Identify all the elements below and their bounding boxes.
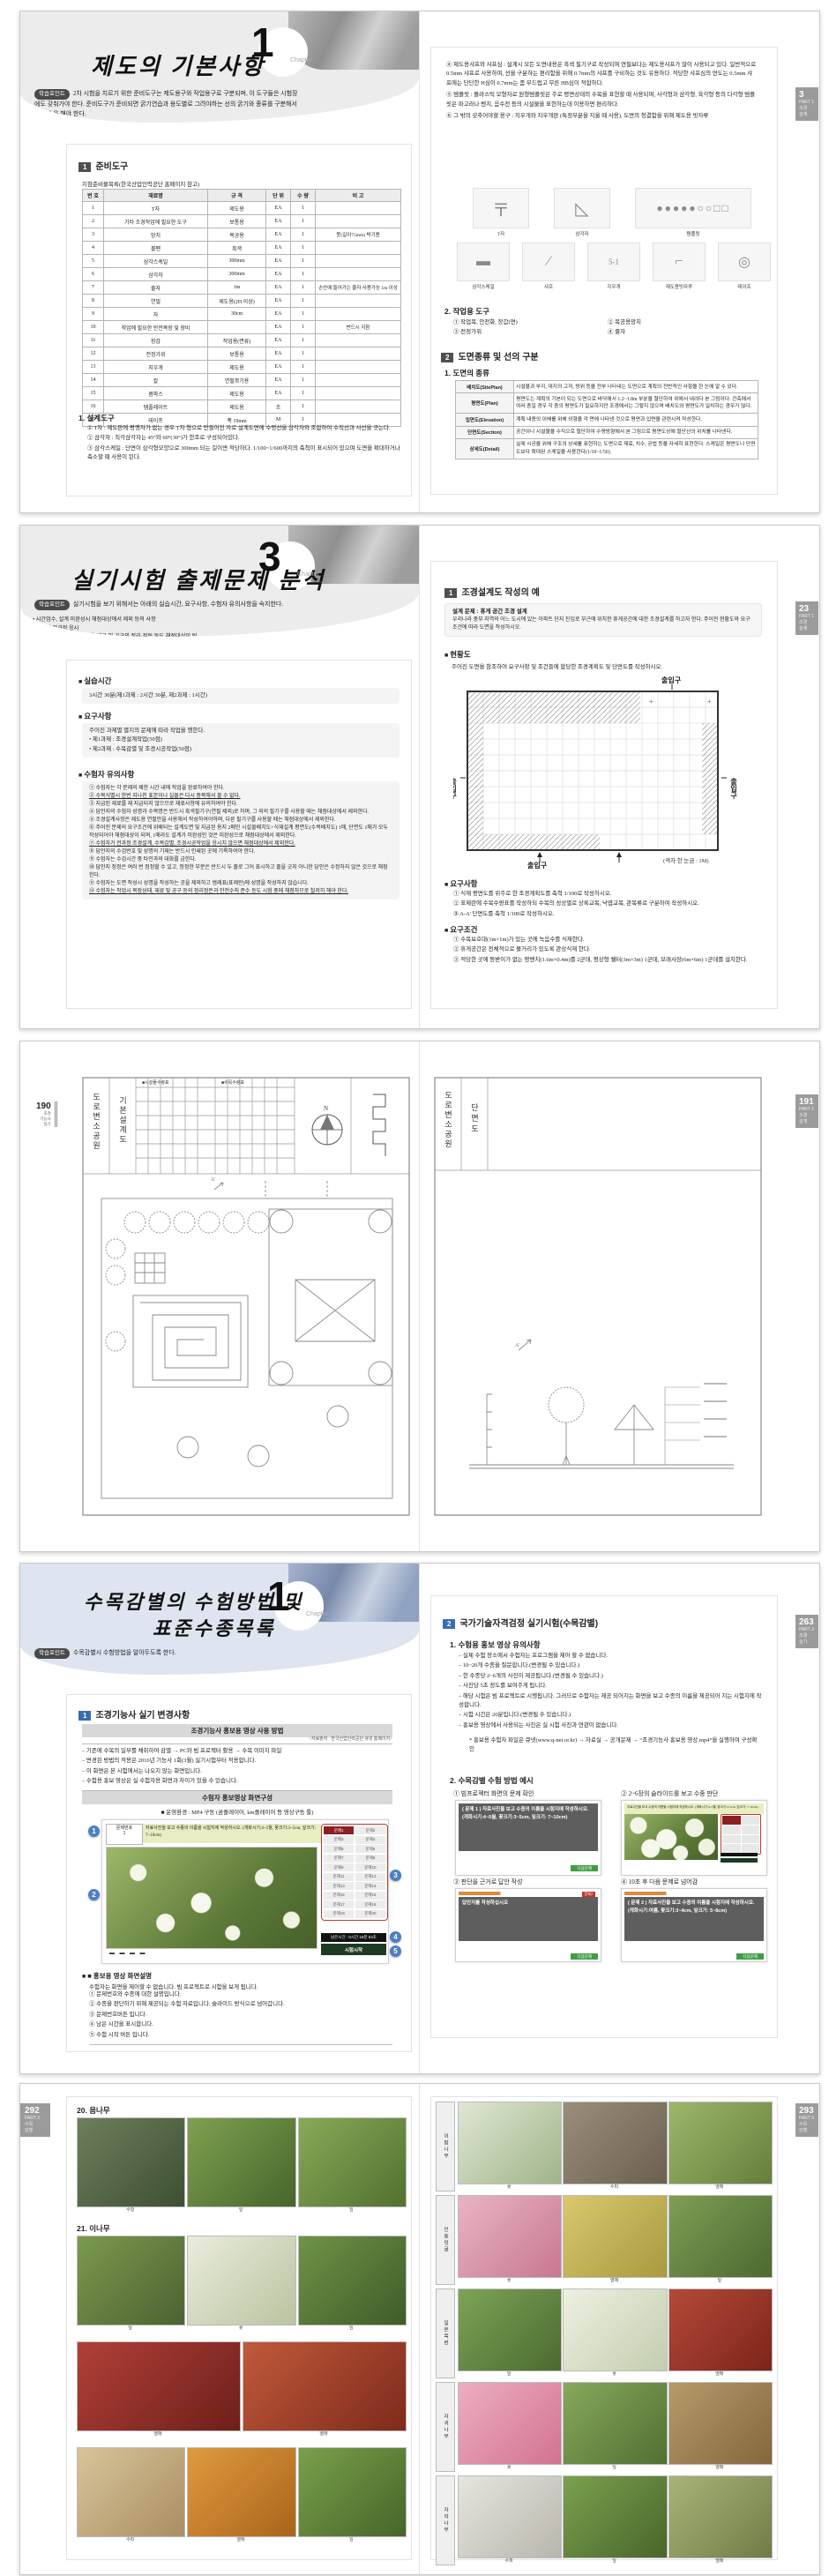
table-row: 9자30cmEA1	[83, 308, 401, 321]
page-tab: 3 PART 1조경설계	[795, 87, 818, 121]
chapter-header: 제도의 기본사항 1 Chapter 학습포인트2차 시험을 치르기 위한 준비…	[20, 11, 419, 123]
table-row: 5삼각스케일300mmEA1	[83, 255, 401, 268]
table-row: 13지우개제도용EA1	[83, 361, 401, 374]
method-note-item: – 이 화면은 본 시험에서는 나오지 않는 화면입니다.	[82, 1767, 392, 1776]
chapter-title: 제도의 기본사항	[91, 49, 265, 81]
screen-description-heading: ■ 홍보용 영상 화면설명	[82, 1971, 152, 1981]
definition-row: 배치도(SitePlan)시설물과 부지, 대지의 고저, 방위 등을 전부 나…	[456, 381, 758, 393]
question-button: 문제14	[355, 1882, 385, 1890]
question-button: 문제4	[355, 1836, 385, 1844]
spread5-right-page: 293 PART 3수목감별 이팝나무 꽃수피열매 인동덩굴 꽃열매잎 일본목련…	[420, 2084, 818, 2574]
notices-box: ① 수험자는 각 문제의 제한 시간 내에 작업을 완료하여야 한다.② 수목식…	[82, 781, 400, 900]
table-row: 10작업에 필요한 안전복장 및 장비EA1반드시 지참	[83, 321, 401, 334]
page-tab: 23 PART 1조경설계	[795, 601, 818, 635]
screen-description-intro: 수험자는 화면을 제어할 수 없습니다. 빔 프로젝트로 시험을 보게 됩니다.	[89, 1982, 258, 1990]
study-point-text: 수목감별시 수험방법을 알아두도록 한다.	[73, 1649, 176, 1656]
template-image: ●●●●●○○□□템플릿	[635, 188, 751, 237]
study-point-badge: 학습포인트	[34, 600, 70, 610]
species-photo: 열매	[563, 2195, 665, 2285]
species-name: 이팝나무	[436, 2102, 455, 2191]
practice-time-box: 3시간 30분(제1과제 : 2시간 30분, 제2과제 : 1시간)	[82, 688, 400, 704]
page-spread-3[interactable]: 190 조경기능사실기 도로변소공원 기본설계도 ■시설물수량표 ■수목수량표 …	[19, 1041, 820, 1552]
species-photo: 잎	[298, 2447, 405, 2544]
supply-table-body: 1T자제도용EA12기타 조경작업에 필요한 도구보통용EA13망치목공용EA1…	[83, 202, 401, 427]
north-label: N	[324, 1105, 328, 1112]
pencil-image: ∕샤프	[522, 243, 575, 290]
example3-answer-text: 답안지를 작성하십시오	[459, 1897, 598, 1941]
spread3-left-page: 190 조경기능사실기 도로변소공원 기본설계도 ■시설물수량표 ■수목수량표 …	[20, 1042, 419, 1551]
description-item: ⑤ 수험 시작 버튼 입니다.	[89, 2031, 392, 2040]
section-title: 도면종류 및 선의 구분	[458, 353, 538, 362]
notice-item: – 시험 시간은 20분입니다.(변경될 수 있습니다.)	[459, 1711, 764, 1720]
table-row: 2기타 조경작업에 필요한 도구보통용EA1	[83, 215, 401, 228]
drawing-types-subtitle: 1. 도면의 종류	[444, 368, 489, 378]
site-plan-heading: 현황도	[444, 649, 471, 660]
method-note-item: – 기존에 수목의 일부를 채취하여 감별 → PC와 빔 프로젝터 활용 → …	[82, 1747, 392, 1756]
example4-caption: ④ 10초 후 다음 문제로 넘어감	[621, 1878, 698, 1886]
species-photo: 수피	[563, 2102, 665, 2191]
note-item: ④ 제도용샤프와 샤프심 : 설계시 모든 도면내용은 흑색 필기구로 작성되며…	[446, 61, 757, 88]
problem-box: 설계 문제 : 휴게 공간 조경 설계 우리나라 중부 지역의 어느 도시에 있…	[444, 603, 762, 637]
chapter-title-line2: 표준수종목록	[153, 1613, 275, 1641]
callout-5: 5	[390, 1945, 401, 1957]
eraser-image: 5-1지우개	[587, 243, 640, 290]
example3-caption: ③ 판단을 근거로 답안 작성	[453, 1878, 522, 1886]
chapter-header: 실기시험 출제문제 분석 3 Chapter 학습포인트실기시험을 보기 위해서…	[20, 526, 419, 637]
column-header: 수 량	[291, 190, 316, 202]
photo-image	[77, 2117, 185, 2207]
section-heading: 2국가기술자격검정 실기시험(수목감별)	[443, 1615, 598, 1631]
method-note-item: – 변경된 방법의 적용은 2016년 기능사 1회(3월) 실기시험부터 적용…	[82, 1757, 392, 1766]
question-button: 문제19	[324, 1910, 354, 1918]
legend-facility: ■시설물수량표	[142, 1079, 169, 1086]
species-photo: 꽃	[458, 2382, 560, 2472]
scale-ruler-image: ▬삼각스케일	[457, 243, 510, 290]
species-photo: 열매	[668, 2382, 771, 2472]
study-point-text: 2차 시험을 치르기 위한 준비도구는 제도용구와 작업용구로 구분되며, 이 …	[34, 90, 298, 117]
example1-screenshot: ( 문제 1 ) 자료사진을 보고 수종의 이름을 시험지에 작성하시오. (개…	[455, 1800, 601, 1876]
photo-image	[187, 2117, 295, 2207]
section-drawing-sheet: 도로변소공원 단면도 A'	[434, 1077, 762, 1516]
chapter-header: 수목감별의 수험방법 및 표준수종목록 1 Chapter 학습포인트수목감별시…	[20, 1564, 419, 1675]
section-number-box: 1	[78, 1711, 91, 1721]
photo-caption: 잎	[187, 2207, 294, 2214]
question-button: 문제15	[324, 1892, 354, 1900]
remaining-time-bar: 남은시간 : 0시간 19분 53초	[321, 1933, 386, 1942]
species-name: 인동덩굴	[436, 2195, 455, 2285]
titleblock-project: 도로변소공원	[92, 1093, 101, 1151]
table-row: 8연필제도용(2H 이상)EA1	[83, 295, 401, 308]
notice-item: ⑦ 수험자가 전과정 조경설계, 수목감별, 조경시공작업을 응시치 않으면 채…	[89, 840, 392, 848]
tape-image: ◎테이프	[718, 243, 771, 290]
condition-item: ③ 적당한 곳에 등받이가 없는 평벤치(1.6m×0.4m)를 2군데, 평상…	[453, 956, 762, 965]
request-item: ② 표제란에 수목수량표를 작성하되 수목의 성상별로 상록교목, 낙엽교목, …	[453, 900, 762, 908]
question-button: 문제8	[355, 1855, 385, 1863]
chapter-title: 실기시험 출제문제 분석	[71, 563, 325, 595]
design-tool-notes: ① T자 : 제도판에 평행자가 없는 경우 T자 형으로 만들어진 자로 설계…	[87, 424, 401, 464]
species-row: 인동덩굴 꽃열매잎	[436, 2195, 771, 2285]
carousel-dots: ▬ ▬ ▬ ▬	[109, 1951, 162, 1956]
tool-notes-456: ④ 제도용샤프와 샤프심 : 설계시 모든 도면내용은 흑색 필기구로 작성되며…	[446, 61, 757, 123]
study-point: 학습포인트2차 시험을 치르기 위한 준비도구는 제도용구와 작업용구로 구분되…	[34, 89, 299, 119]
svg-text:+: +	[707, 698, 712, 706]
study-point-badge: 학습포인트	[34, 89, 70, 100]
question-button: 문제5	[324, 1845, 354, 1853]
section-number-box: 2	[441, 353, 453, 362]
section-title: 국가기술자격검정 실기시험(수목감별)	[459, 1619, 598, 1629]
callout-3: 3	[390, 1870, 401, 1881]
condition-item: ② 휴게공간은 전체적으로 볼거리가 있도록 관상식재 한다.	[453, 945, 762, 954]
question-button: 문제16	[355, 1892, 385, 1900]
legend-tree: ■수목수량표	[221, 1079, 244, 1086]
question-badge: 문제2	[582, 1892, 595, 1897]
question-button: 문제12	[355, 1873, 385, 1881]
titleblock-project: 도로변소공원	[444, 1091, 452, 1149]
specimen-photo	[106, 1847, 317, 1949]
next-button: 다음문제	[571, 1865, 598, 1871]
table-caption: 지참준비물목록(한국산업인력공단 홈페이지 참고)	[82, 179, 199, 188]
section2-heading: 2도면종류 및 선의 구분	[441, 348, 539, 364]
species-photo: 꽃	[458, 2102, 560, 2191]
species-photo: 열매	[668, 2102, 771, 2191]
screen-layout-bar: 수험자 홍보영상 화면구성	[82, 1791, 392, 1804]
page-spread-2[interactable]: 실기시험 출제문제 분석 3 Chapter 학습포인트실기시험을 보기 위해서…	[19, 525, 820, 1029]
photo-caption: 잎	[298, 2207, 405, 2214]
section-heading: 1준비도구	[78, 158, 128, 174]
drawing-types-table: 배치도(SitePlan)시설물과 부지, 대지의 고저, 방위 등을 전부 나…	[455, 380, 758, 459]
condition-list: ① 수목보호대(1m×1m)가 있는 곳에 녹음수를 식재한다.② 휴게공간은 …	[453, 936, 762, 966]
callout-2: 2	[88, 1889, 100, 1900]
species-photo: 꽃	[563, 2289, 665, 2378]
definition-row: 상세도(Detail)실제 시공을 위해 구조의 상세를 표현하는 도면으로 재…	[456, 438, 758, 459]
example4-question-text: ( 문제 2 ) 자료사진을 보고 수종의 이름을 시험지에 작성하시오. (개…	[624, 1897, 764, 1941]
table-row: 1T자제도용EA1	[83, 202, 401, 215]
condition-heading: 요구조건	[444, 924, 477, 935]
entrance-label-left: 출입구	[453, 777, 458, 800]
species-photo: 열매	[668, 2289, 771, 2378]
species-row: 일본목련 잎꽃열매	[436, 2289, 771, 2378]
species-20-photos: 수형잎잎	[77, 2117, 405, 2214]
subsection-title: 1. 설계도구	[78, 413, 115, 423]
method-notes: – 기존에 수목의 일부를 채취하여 감별 → PC와 빔 프로젝터 활용 → …	[82, 1743, 392, 1791]
species-photo: 잎	[563, 2475, 665, 2565]
species-name: 자작나무	[436, 2475, 455, 2565]
notice-item: ⑤ 조경설계사항은 제도용 연필만을 사용해서 작성하여야하며, 다른 필기구를…	[89, 817, 392, 825]
chapter-number: 1	[251, 22, 274, 63]
notice-subtitle: 1. 수험용 홍보 영상 유의사항	[450, 1639, 541, 1650]
note-item: ⑥ 그 밖의 갖추어야할 용구 : 지우개와 지우개판 (특정부분을 지울 때 …	[446, 112, 757, 121]
species-photo: 열매	[77, 2341, 239, 2438]
page-spread-5[interactable]: 292 PART 3수목감별 20. 음나무 수형잎잎 21. 이나무 잎꽃잎 …	[19, 2083, 820, 2575]
titleblock-sheet: 기본설계도	[118, 1096, 127, 1145]
chapter-word: Chapter	[306, 1611, 328, 1617]
notice-item: – 홍보용 영상에서 사용되는 사진은 실 시험 사진과 연관이 없습니다.	[459, 1721, 764, 1730]
section-heading: 1조경기능사 실기 변경사항	[78, 1706, 190, 1722]
question-button: 문제11	[324, 1873, 354, 1881]
page-tab: 293 PART 3수목감별	[795, 2103, 818, 2137]
study-point: 학습포인트수목감별시 수험방법을 알아두도록 한다.	[34, 1648, 317, 1659]
spread5-left-page: 292 PART 3수목감별 20. 음나무 수형잎잎 21. 이나무 잎꽃잎 …	[20, 2084, 419, 2574]
description-item: ④ 남은 시간을 표시합니다.	[89, 2020, 392, 2029]
next-button: 다음문제	[571, 1953, 598, 1960]
question-button: 문제7	[324, 1855, 354, 1863]
notice-item: – 한 수종당 2~6개의 사진이 제공됩니다.(변경될 수 있습니다.)	[459, 1672, 764, 1681]
exam-start-bar: 시험시작	[321, 1944, 386, 1955]
margin-page-number: 190 조경기능사실기	[36, 1101, 57, 1127]
photo-caption: 수형	[77, 2207, 183, 2214]
notice-item: ② 수목식별시 한번 지나친 표본이나 실물은 다시 중복해서 볼 수 없다.	[89, 793, 392, 801]
notice-item: ③ 지급된 재료를 재 지급되지 않으므로 재료사항에 유의하여야 한다.	[89, 801, 392, 809]
species-photo: 잎	[298, 2236, 405, 2333]
section-number-box: 1	[444, 588, 457, 598]
example3-screenshot: 문제2 답안지를 작성하십시오 다음문제	[455, 1888, 601, 1962]
question-button: 문제20	[355, 1910, 385, 1918]
species-photo: 열매	[243, 2341, 405, 2438]
notice-item: – 실제 수험 장소에서 수험자는 프로그램을 제어 할 수 없습니다.	[459, 1652, 764, 1661]
work-tool-item: ① 작업복, 안전화, 장갑(면)	[453, 318, 599, 327]
species-name: 자귀나무	[436, 2382, 455, 2472]
condition-item: ① 수목보호대(1m×1m)가 있는 곳에 녹음수를 식재한다.	[453, 936, 762, 945]
column-header: 단 위	[266, 190, 291, 202]
notice-item: ⑪ 수험자는 도면 작성시 성명을 작성하는 곳을 제외하고 범례표(표제란)에…	[89, 880, 392, 888]
section-number-box: 1	[78, 162, 91, 172]
problem-title: 설계 문제 : 휴게 공간 조경 설계	[452, 608, 754, 616]
entrance-label-right: 출입구	[729, 777, 737, 800]
mini-button-grid	[721, 1814, 761, 1855]
environment-line: ■ 운영환경 : MP4 구동 (곰플레이어, km플레이어 등 영상구동 툴)	[82, 1807, 392, 1816]
bullet-item: • 시간엄수, 설계 미완성시 채점대상에서 제외 등의 사항	[33, 616, 324, 624]
supply-table: 번 호재료명규 격단 위수 량비 고 1T자제도용EA12기타 조경작업에 필요…	[82, 189, 401, 427]
notice-item: ⑫ 수험자는 작업시 복장상태, 재료 및 공구 등의 정리정돈과 안전수칙 준…	[89, 888, 392, 896]
request-item: ① 식재 평면도를 위주로 한 조경계획도를 축척 1/100로 작성하시오.	[453, 890, 762, 899]
example2-screenshot: 자료사진을 보고 수종의 이름을 시험지에 작성하시오. (개화시기:4~5월,…	[621, 1800, 767, 1876]
table-row: 11장갑작업용(면류)EA1	[83, 334, 401, 347]
chapter-word: Chapter	[290, 57, 312, 63]
example-subtitle: 2. 수목감별 수험 방법 예시	[450, 1775, 534, 1786]
page-number: 293	[799, 2106, 818, 2116]
notice-item: ⑧ 답안지의 수검번호 및 성명의 기재는 반드시 인쇄된 곳에 기록하여야 한…	[89, 848, 392, 856]
column-header: 재료명	[104, 190, 208, 202]
note-item: ① T자 : 제도판에 평행자가 없는 경우 T자 형으로 만들어진 자로 설계…	[87, 424, 401, 433]
table-row: 7줄자1mEA1손안에 들어가는 줄자 사용가능 1m 이상	[83, 281, 401, 295]
section-number-box: 2	[443, 1619, 455, 1629]
requirements-list: • 제1과제 : 조경설계작업(50점)• 제2과제 : 수목감별 및 조경시공…	[89, 735, 392, 754]
question-number-cell: 문제번호1	[106, 1824, 143, 1845]
question-button: 문제3	[324, 1836, 354, 1844]
triangle-ruler-image: ◺삼각자	[554, 188, 610, 237]
question-instruction: 자료사진을 보고 수종의 이름을 시험지에 작성하시오. (개화시기:4~5월,…	[143, 1824, 321, 1843]
tab-part: PART 1	[799, 100, 814, 105]
section-title: 준비도구	[95, 162, 128, 172]
question-button: 문제13	[324, 1882, 354, 1890]
species-photo: 잎	[77, 2236, 183, 2333]
site-plan-intro: 주어진 도면을 참조하여 요구사항 및 조건들에 합당한 조경계획도 및 단면도…	[452, 661, 662, 670]
work-tools-list: ① 작업복, 안전화, 장갑(면)② 목공용망치③ 전정가위④ 줄자	[453, 318, 753, 339]
question-button: 문제17	[324, 1900, 354, 1908]
problem-text: 우리나라 중부 지역의 어느 도시에 있는 아파트 단지 진입로 부근에 위치한…	[452, 616, 754, 632]
description-item: ① 문제번호와 수종에 대한 설명입니다.	[89, 1990, 392, 1999]
question-button: 문제2	[355, 1826, 385, 1834]
work-tool-item: ④ 줄자	[608, 328, 753, 337]
mini-logo-bar	[624, 1892, 764, 1895]
tsquare-image: 〒T자	[473, 188, 529, 237]
question-button: 문제9	[324, 1863, 354, 1871]
question-button: 문제10	[355, 1863, 385, 1871]
species-row: 이팝나무 꽃수피열매	[436, 2102, 771, 2191]
section-title: 조경기능사 실기 변경사항	[95, 1711, 190, 1721]
spread1-right-page: 3 PART 1조경설계 ④ 제도용샤프와 샤프심 : 설계시 모든 도면내용은…	[420, 11, 818, 512]
request-item: ③ A-A' 단면도를 축척 1/100로 작성하시오.	[453, 910, 762, 919]
notice-item: ① 수험자는 각 문제의 제한 시간 내에 작업을 완료하여야 한다.	[89, 785, 392, 793]
grid-scale-note: (격자 한 눈금 : 1M)	[663, 856, 709, 864]
study-point: 학습포인트실기시험을 보기 위해서는 아래의 실습시간, 요구사항, 수험자 유…	[34, 600, 308, 610]
supply-table-header-row: 번 호재료명규 격단 위수 량비 고	[83, 190, 401, 202]
species-photo: 잎	[563, 2382, 665, 2472]
definition-row: 입면도(Elevation)계획 내용의 이해를 위해 외형을 각 면에 나타낸…	[456, 414, 758, 426]
chapter-number: 3	[258, 536, 281, 577]
callout-4: 4	[390, 1931, 401, 1943]
species-photo: 잎	[298, 2117, 405, 2214]
work-tool-item: ② 목공용망치	[608, 318, 753, 327]
example1-caption: ① 빔프로젝터 화면의 문제 확인	[453, 1789, 534, 1798]
requirement-item: • 제2과제 : 수목감별 및 조경시공작업(50점)	[89, 745, 392, 754]
table-row: 4볼펜흑색EA1	[83, 242, 401, 255]
page-spread-1[interactable]: 제도의 기본사항 1 Chapter 학습포인트2차 시험을 치르기 위한 준비…	[19, 11, 820, 513]
note-item: ③ 삼각스케일 : 단면이 삼각형모양으로 300mm 되는 길이면 적당하다.…	[87, 444, 401, 463]
qnet-note: * 홍보용 수험자 파일은 큐넷(www.q-net.or.kr) → 자료실 …	[469, 1736, 760, 1755]
example2-caption: ② 2~6장의 슬라이드를 보고 수종 판단	[621, 1789, 718, 1798]
screen-description-list: ① 문제번호와 수종에 대한 설명입니다.② 수종을 판단하기 위해 제공되는 …	[89, 1990, 392, 2045]
species-photo: 수피	[77, 2447, 183, 2544]
note-item: ⑤ 템플릿 : 플라스틱 모형자로 원형템플릿은 주로 평면상태의 수목을 표현…	[446, 91, 757, 109]
definition-row: 평면도(Plan)평면도는 계획의 기본이 되는 도면으로 바닥에서 1.2~1…	[456, 393, 758, 414]
spread2-right-page: 23 PART 1조경설계 1조경설계도 작성의 예 설계 문제 : 휴게 공간…	[420, 526, 818, 1028]
species-21-row2: 열매열매	[77, 2341, 405, 2438]
notice-list: – 실제 수험 장소에서 수험자는 프로그램을 제어 할 수 없습니다.– 10…	[459, 1652, 764, 1731]
species-photo: 열매	[187, 2447, 294, 2544]
book-preview-canvas: { "spread1": { "left": { "title": "제도의 기…	[0, 0, 829, 2576]
species-photo: 수피	[458, 2475, 560, 2565]
mini-specimen-photo	[624, 1814, 718, 1860]
example1-question-text: ( 문제 1 ) 자료사진을 보고 수종의 이름을 시험지에 작성하시오. (개…	[459, 1803, 598, 1851]
practice-time-heading: 실습시간	[78, 676, 111, 686]
column-header: 번 호	[83, 190, 104, 202]
table-row: 16템플레이트제도용조1	[83, 400, 401, 414]
request-heading: 요구사항	[444, 878, 477, 889]
page-number: 23	[799, 604, 818, 614]
question-button: 문제18	[355, 1900, 385, 1908]
photo-image	[298, 2117, 407, 2207]
bullet-item: • 수험자의 작업시 복장상태, 재료 및 공구의 정리·정돈 등도 채점대상이…	[33, 632, 324, 637]
page-tab: 263 PART 3조경실기	[795, 1615, 818, 1648]
description-item: ② 수종을 판단하기 위해 제공되는 수험 자료입니다. 슬라이드 방식으로 넘…	[89, 2000, 392, 2009]
site-plan-diagram: + + 출입구 출입구 출입구 출입구 (격자 한 눈금 : 1M)	[453, 672, 746, 873]
chapter-number: 1	[267, 1576, 290, 1617]
page-number: 263	[799, 1617, 818, 1627]
species-21-heading: 21. 이나무	[77, 2223, 110, 2234]
page-spread-4[interactable]: 수목감별의 수험방법 및 표준수종목록 1 Chapter 학습포인트수목감별시…	[19, 1563, 820, 2074]
question-button-grid: 문제1문제2문제3문제4문제5문제6문제7문제8문제9문제10문제11문제12문…	[321, 1824, 388, 1921]
species-photo: 잎	[187, 2117, 294, 2214]
description-item: ③ 문제번호버튼 입니다.	[89, 2011, 392, 2020]
spread4-left-page: 수목감별의 수험방법 및 표준수종목록 1 Chapter 학습포인트수목감별시…	[20, 1564, 419, 2073]
definition-row: 단면도(Section)공간이나 시설물을 수직으로 절단하여 수평방향에서 본…	[456, 426, 758, 438]
page-tab: 191 PART 1조경설계	[795, 1094, 818, 1128]
section-title: 조경설계도 작성의 예	[461, 588, 539, 598]
plan-drawing-sheet: 도로변소공원 기본설계도 ■시설물수량표 ■수목수량표 N	[82, 1077, 410, 1516]
notice-item: – 사진당 5초 정도를 보여주게 됩니다.	[459, 1682, 764, 1691]
page-number: 3	[799, 90, 818, 100]
page-number: 292	[25, 2106, 48, 2116]
table-row: 12전정가위보통용EA1	[83, 347, 401, 361]
species-21-row1: 잎꽃잎	[77, 2236, 405, 2333]
exam-player-mock: 문제번호1 자료사진을 보고 수종의 이름을 시험지에 작성하시오. (개화시기…	[101, 1819, 389, 1964]
notice-item: ⑩ 답안지 정정은 여러 번 정정할 수 있고, 정정한 부분은 반드시 두 줄…	[89, 864, 392, 880]
bullet-item: • 시험의 전과정 응시	[33, 624, 324, 633]
notice-item: – 10~20개 수종을 질문합니다.(변경될 수 있습니다.)	[459, 1661, 764, 1670]
notice-item: ⑥ 주어진 문제의 요구조건에 위배되는 설계도면 및 지급된 용지 2매인 시…	[89, 825, 392, 840]
brush-image: ⌐제도용빗자루	[653, 243, 706, 290]
column-header: 비 고	[316, 190, 401, 202]
next-button: 다음문제	[736, 1953, 764, 1960]
study-point-text: 실기시험을 보기 위해서는 아래의 실습시간, 요구사항, 수험자 유의사항을 …	[73, 601, 283, 608]
mini-logo-bar	[459, 1892, 598, 1895]
requirements-box: 주어진 과제별 별지의 문제에 따라 작업을 행한다. • 제1과제 : 조경설…	[82, 723, 400, 758]
question-button: 문제6	[355, 1845, 385, 1853]
entrance-label-bottom: 출입구	[527, 861, 548, 870]
page-number: 191	[799, 1097, 818, 1107]
request-list: ① 식재 평면도를 위주로 한 조경계획도를 축척 1/100로 작성하시오.②…	[453, 890, 762, 920]
table-row: 15콤파스제도용EA1	[83, 387, 401, 400]
species-photo: 꽃	[458, 2195, 560, 2285]
species-photo: 잎	[458, 2289, 560, 2378]
study-point-badge: 학습포인트	[34, 1648, 70, 1659]
requirement-item: • 제1과제 : 조경설계작업(50점)	[89, 735, 392, 744]
section-heading: 1조경설계도 작성의 예	[444, 584, 540, 600]
notices-heading: 수험자 유의사항	[78, 769, 134, 780]
svg-text:+: +	[649, 698, 653, 706]
tool-images-row1: 〒T자 ◺삼각자 ●●●●●○○□□템플릿	[473, 188, 751, 237]
requirements-heading: 요구사항	[78, 711, 111, 721]
species-photo: 꽃	[187, 2236, 294, 2333]
spread3-right-page: 191 PART 1조경설계 도로변소공원 단면도 A'	[420, 1042, 818, 1551]
table-row: 14칼연필깎기용EA1	[83, 374, 401, 387]
notice-item: ⑨ 수험자는 수검시간 중 타인과의 대화를 금한다.	[89, 856, 392, 864]
species-photo: 잎	[668, 2195, 771, 2285]
work-tool-item: ③ 전정가위	[453, 328, 599, 337]
spread2-left-page: 실기시험 출제문제 분석 3 Chapter 학습포인트실기시험을 보기 위해서…	[20, 526, 419, 1028]
study-point-bullets: • 시간엄수, 설계 미완성시 채점대상에서 제외 등의 사항• 시험의 전과정…	[33, 616, 324, 637]
titleblock-sheet: 단면도	[470, 1103, 479, 1135]
species-20-heading: 20. 음나무	[77, 2105, 110, 2116]
notice-item: ④ 답안지의 수험자 성명과 수목명은 반드시 흑색필기구(연필 제외)로 하며…	[89, 809, 392, 817]
note-item: ② 삼각자 : 직각삼각자는 45°와 60°(30°)가 한조로 구성되어있다…	[87, 434, 401, 443]
mini-start-bar	[721, 1858, 758, 1863]
method-note-item: – 수험용 홍보 영상은 실 수험자용 화면과 차이가 있을 수 있습니다.	[82, 1777, 392, 1786]
page-tab: 292 PART 3수목감별	[20, 2103, 50, 2137]
section-cut-label: A'	[211, 1177, 215, 1183]
species-name: 일본목련	[436, 2289, 455, 2378]
species-row: 자귀나무 꽃잎열매	[436, 2382, 771, 2472]
requirements-intro: 주어진 과제별 별지의 문제에 따라 작업을 행한다.	[89, 727, 392, 735]
species-photo: 열매	[668, 2475, 771, 2565]
chapter-word: Chapter	[297, 571, 319, 578]
species-photo: 수형	[77, 2117, 183, 2214]
species-row: 자작나무 수피잎열매	[436, 2475, 771, 2565]
question-button: 문제1	[324, 1826, 354, 1834]
spread4-right-page: 263 PART 3조경실기 2국가기술자격검정 실기시험(수목감별) 1. 수…	[420, 1564, 818, 2073]
callout-1: 1	[88, 1826, 100, 1837]
